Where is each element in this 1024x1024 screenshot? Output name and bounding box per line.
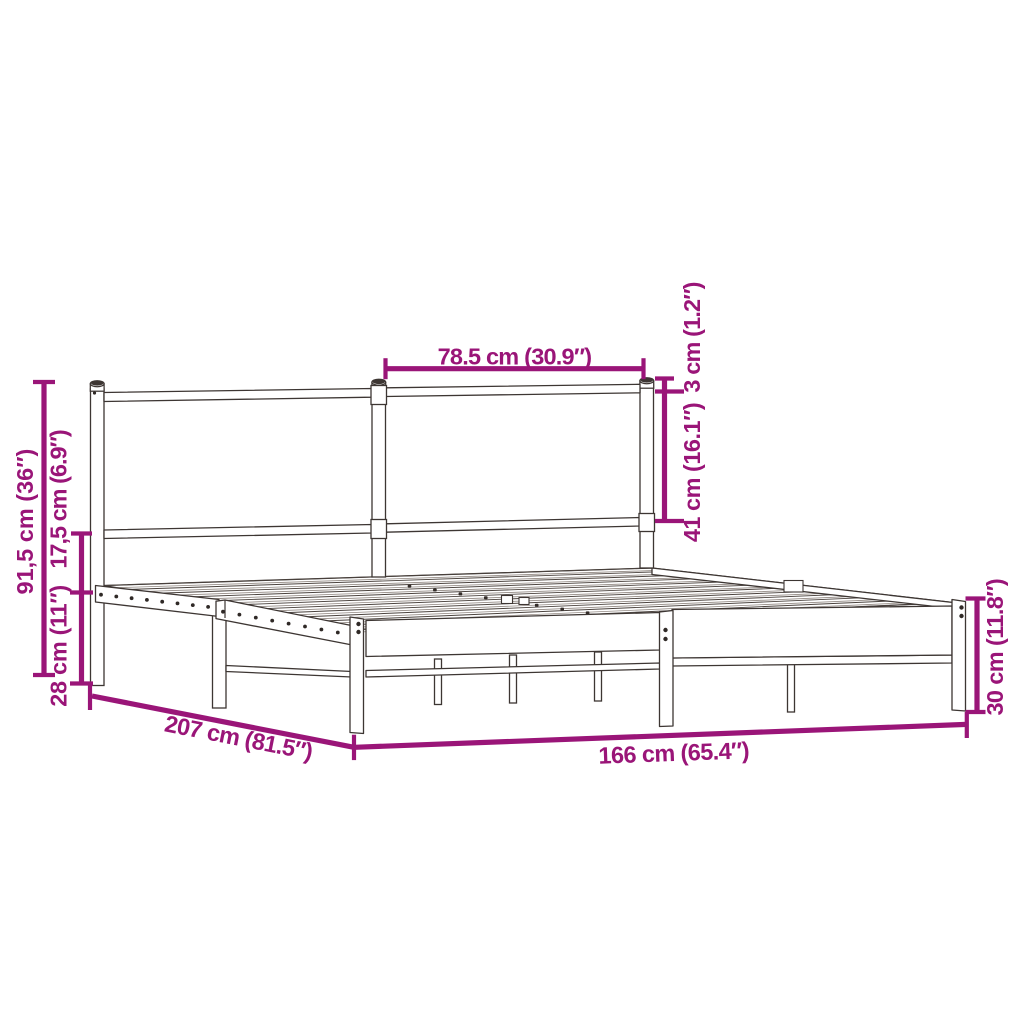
svg-text:17,5 cm (6.9″): 17,5 cm (6.9″)	[46, 430, 72, 569]
svg-text:91,5 cm (36″): 91,5 cm (36″)	[12, 449, 38, 595]
svg-text:166 cm (65.4″): 166 cm (65.4″)	[598, 737, 749, 768]
svg-text:3 cm (1.2″): 3 cm (1.2″)	[679, 282, 705, 392]
svg-text:78.5 cm (30.9″): 78.5 cm (30.9″)	[438, 344, 592, 370]
svg-text:30 cm (11.8″): 30 cm (11.8″)	[982, 579, 1008, 716]
svg-text:28 cm (11″): 28 cm (11″)	[46, 585, 72, 707]
svg-text:41 cm (16.1″): 41 cm (16.1″)	[679, 403, 705, 542]
